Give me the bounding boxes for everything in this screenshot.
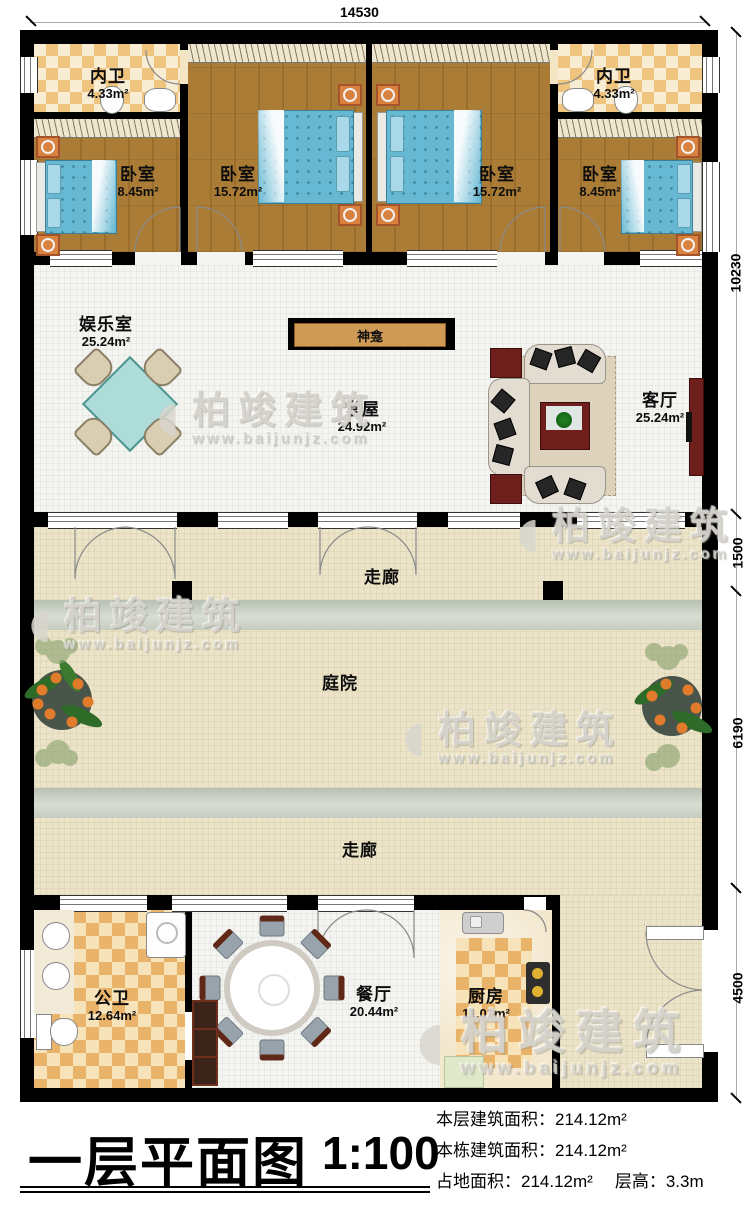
title-underline xyxy=(20,1186,430,1188)
dining-chair xyxy=(260,916,285,937)
kitchen-door-opening xyxy=(524,897,546,910)
room-label-yuleshi: 娱乐室 25.24m² xyxy=(79,315,133,349)
window xyxy=(20,57,38,93)
closet-left-large xyxy=(188,44,366,63)
bed-pillow xyxy=(336,116,350,152)
dining-chair xyxy=(200,976,221,1001)
dining-table-center xyxy=(258,974,290,1006)
dimension-right-courtyard: 6190 xyxy=(730,717,746,748)
bed-pillow xyxy=(677,164,691,194)
dining-chair xyxy=(260,1040,285,1061)
window xyxy=(448,512,520,529)
sink xyxy=(42,962,70,990)
toilet xyxy=(50,1018,78,1046)
entry-door-leaf xyxy=(646,926,704,940)
bed-blanket xyxy=(92,160,115,232)
corridor-top-floor xyxy=(34,527,702,600)
bed-blanket xyxy=(621,160,644,232)
room-label-bedroom-large-right: 卧室 15.72m² xyxy=(473,165,521,199)
dimension-top: 14530 xyxy=(340,4,379,20)
bed-pillow xyxy=(677,198,691,228)
room-label-neiwei-right: 内卫 4.33m² xyxy=(593,67,634,101)
sink xyxy=(562,88,594,112)
sink xyxy=(144,88,176,112)
kitchen-sink-basin xyxy=(470,916,482,928)
sink xyxy=(42,922,70,950)
washing-machine-drum xyxy=(156,922,178,944)
plant-icon xyxy=(556,412,572,428)
nightstand xyxy=(376,84,400,106)
tv-icon xyxy=(686,412,692,442)
door-sill xyxy=(318,895,414,912)
room-label-canting: 餐厅 20.44m² xyxy=(350,985,398,1019)
dining-chair xyxy=(324,976,345,1001)
door-sill xyxy=(73,512,177,529)
stove-burner xyxy=(532,968,543,979)
door-opening xyxy=(180,50,188,84)
shrine-label: 神龛 xyxy=(357,326,383,345)
room-label-keting: 客厅 25.24m² xyxy=(636,391,684,425)
door-opening xyxy=(185,1012,192,1060)
room-label-zoulang-bottom: 走廊 xyxy=(342,841,378,861)
room-label-gongwei: 公卫 12.64m² xyxy=(88,989,136,1023)
window xyxy=(702,162,720,252)
window xyxy=(407,250,497,267)
entry-door-leaf xyxy=(646,1044,704,1058)
nightstand xyxy=(376,204,400,226)
bed-pillow xyxy=(47,164,61,194)
shrine: 神龛 xyxy=(294,323,446,347)
entry-opening xyxy=(702,930,718,1052)
title-underline xyxy=(20,1191,430,1193)
nightstand xyxy=(36,136,60,158)
room-label-zoulang-top: 走廊 xyxy=(364,568,400,588)
window xyxy=(48,512,73,529)
cabinet-divider xyxy=(194,1028,216,1030)
stove-burner xyxy=(532,986,543,997)
door-opening xyxy=(135,252,181,265)
cabinet-divider xyxy=(194,1056,216,1058)
room-label-chufang: 厨房 11.01m² xyxy=(462,987,510,1021)
kitchen-sink xyxy=(462,912,504,934)
window xyxy=(172,895,287,912)
nightstand xyxy=(338,84,362,106)
courtyard-path-top xyxy=(34,600,702,630)
plan-stats: 本层建筑面积：214.12m² 本栋建筑面积：214.12m² 占地面积：214… xyxy=(436,1104,704,1197)
dimension-right-top: 10230 xyxy=(727,254,743,293)
bed-pillow xyxy=(390,116,404,152)
plan-scale: 1:100 xyxy=(322,1126,440,1180)
window xyxy=(702,57,720,93)
bed-pillow xyxy=(336,156,350,192)
nightstand xyxy=(676,234,700,256)
cabinet xyxy=(192,1000,218,1086)
column xyxy=(543,581,563,600)
kitchen-mat xyxy=(444,1056,484,1088)
column xyxy=(172,581,192,600)
door-opening xyxy=(497,252,545,265)
room-label-bedroom-small-right: 卧室 8.45m² xyxy=(579,165,620,199)
stat-line: 本层建筑面积：214.12m² xyxy=(436,1104,704,1135)
door-opening xyxy=(550,50,558,84)
courtyard-floor xyxy=(34,630,702,788)
stat-line: 本栋建筑面积：214.12m² xyxy=(436,1135,704,1166)
nightstand xyxy=(36,234,60,256)
stat-line: 占地面积：214.12m²层高：3.3m xyxy=(436,1166,704,1197)
side-table xyxy=(490,474,522,504)
dimension-right-corridor: 1500 xyxy=(730,537,746,568)
nightstand xyxy=(676,136,700,158)
closet-right-large xyxy=(372,44,550,63)
nightstand xyxy=(338,204,362,226)
bed-pillow xyxy=(390,156,404,192)
room-label-tingyuan: 庭院 xyxy=(322,674,358,694)
door-opening xyxy=(558,252,604,265)
bed-pillow xyxy=(47,198,61,228)
window xyxy=(577,512,685,529)
room-label-bedroom-small-left: 卧室 8.45m² xyxy=(117,165,158,199)
window xyxy=(218,512,288,529)
room-label-tangwu: 堂屋 24.92m² xyxy=(338,400,386,434)
courtyard-path-bottom xyxy=(34,788,702,818)
entry-corridor-floor xyxy=(560,895,702,1088)
room-label-neiwei-left: 内卫 4.33m² xyxy=(87,67,128,101)
dimension-right-bottom: 4500 xyxy=(730,972,746,1003)
floor-plan: 14530 10230 1500 6190 4500 xyxy=(0,0,750,1207)
window xyxy=(253,250,343,267)
side-table xyxy=(490,348,522,378)
door-sill xyxy=(318,512,417,529)
door-opening xyxy=(197,252,245,265)
room-label-bedroom-large-left: 卧室 15.72m² xyxy=(214,165,262,199)
